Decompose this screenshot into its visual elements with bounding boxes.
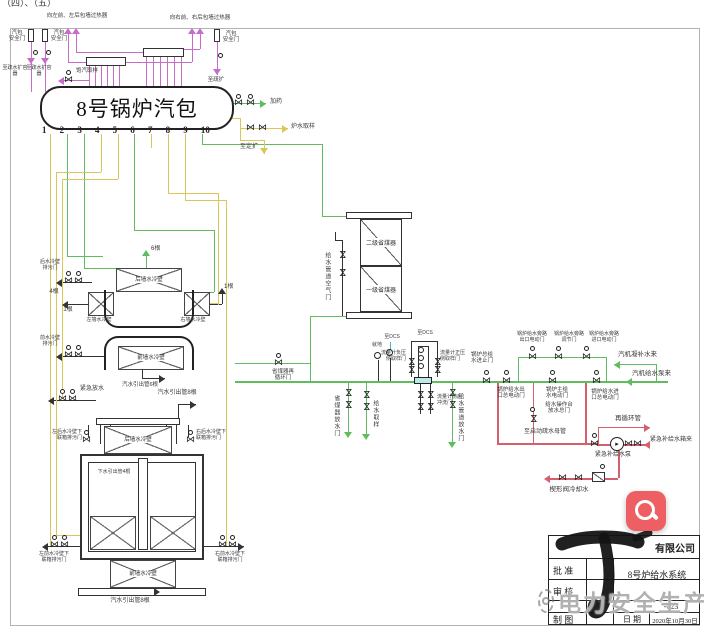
upper-wall-left-label: 左墙水冷壁	[76, 318, 122, 324]
arrowhead	[56, 279, 62, 287]
lower-outlet-bottom-label: 汽水引出管8根	[94, 598, 166, 605]
nozzle-4: 4	[95, 125, 100, 135]
actuator-icon	[220, 535, 225, 540]
valve-icon: ⋈	[337, 268, 346, 277]
valve-icon: ⋈	[406, 365, 415, 374]
search-icon-handle	[650, 511, 659, 520]
valve-icon: ⋈	[74, 351, 83, 360]
actuator-icon	[550, 370, 555, 375]
lower-front-label: 前墙水冷壁	[128, 571, 158, 577]
actuator-icon	[276, 353, 281, 358]
steam-drum: 8号锅炉汽包	[40, 86, 234, 130]
pipe-segment	[310, 316, 311, 381]
pipe-segment	[56, 172, 101, 173]
pipe-segment	[101, 148, 102, 172]
emerg-tank-label: 紧急补给水箱来	[650, 437, 702, 444]
dosing-label: 加药	[270, 99, 290, 106]
arrowhead	[213, 69, 221, 75]
pipe-segment	[84, 148, 85, 268]
local-gauge-label: 就地	[369, 343, 385, 349]
company-name: 有限公司	[549, 540, 695, 555]
valve-icon: ⋈	[502, 377, 511, 386]
emerg-recirc-label: 再循环管	[608, 415, 648, 422]
actuator-icon	[76, 345, 81, 350]
economizer-bottom-header	[346, 312, 412, 319]
arrowhead	[41, 58, 49, 64]
pipe-segment	[202, 134, 203, 144]
pipe-segment	[101, 134, 102, 148]
date-label: 日 期	[615, 614, 649, 625]
pipe-segment	[100, 425, 101, 444]
pipe-segment	[118, 148, 119, 179]
air-valve-label: 给水管道空气门	[323, 238, 330, 314]
cooling-water-label: 楔形阀冷却水	[544, 486, 594, 493]
arrowhead	[42, 543, 48, 551]
actuator-icon	[84, 430, 89, 435]
pipe-segment	[210, 292, 214, 293]
steam-header-left	[86, 57, 126, 66]
actuator-icon	[484, 370, 489, 375]
valve-icon: ⋈	[82, 436, 91, 445]
valve-icon: ⋈	[432, 365, 441, 374]
steam-sample-label: 饱汽取样	[70, 68, 104, 74]
arrowhead	[344, 432, 352, 438]
to-blowdown-label: 至定扩	[236, 144, 262, 151]
actuator-icon	[76, 271, 81, 276]
arrowhead	[27, 58, 35, 64]
steam-drum-label: 8号锅炉汽包	[76, 93, 198, 123]
lower-outlet-top-label: 汽水引出管8根	[144, 390, 210, 397]
economizer-top-header	[346, 212, 412, 219]
pipe-segment	[56, 535, 80, 536]
pipe-segment	[67, 134, 68, 148]
arrowhead	[154, 588, 160, 596]
pipe-segment	[335, 240, 342, 241]
upper-wall-top-header: 后墙水冷壁	[116, 268, 182, 292]
pipe-drain-label: 给水管道放水门	[456, 386, 463, 448]
pipe-segment	[226, 200, 227, 546]
valve-icon: ⋈	[258, 124, 267, 133]
valve-icon: ⋈	[574, 474, 583, 483]
steam-header-right	[143, 48, 184, 57]
pipe-segment	[322, 216, 346, 217]
search-button[interactable]	[626, 491, 666, 531]
search-icon	[635, 500, 655, 520]
pipe-segment	[67, 256, 103, 257]
valve-icon: ⋈	[58, 395, 67, 404]
pipe-segment	[497, 443, 598, 445]
valve-icon: ⋈	[415, 390, 424, 399]
pipe-segment	[235, 363, 310, 364]
pipe-segment	[310, 316, 346, 317]
valve-icon: ⋈	[64, 277, 73, 286]
flow-orifice	[414, 377, 432, 384]
actuator-icon	[66, 271, 71, 276]
nozzle-9: 9	[183, 125, 188, 135]
actuator-icon	[188, 430, 193, 435]
gauge-icon	[418, 355, 424, 361]
pipe-segment	[126, 62, 192, 63]
to-right-wall-label: 向右前、右后包墙过热器	[158, 15, 242, 21]
economizer-stage1-label: 一级省煤器	[365, 285, 397, 294]
drain-label-1: 至疏水扩容器	[2, 66, 28, 78]
actuator-icon	[592, 433, 597, 438]
valve-icon: ⋈	[590, 440, 599, 449]
upper-wall-top-label: 后墙水冷壁	[134, 277, 164, 283]
pipe-segment	[378, 360, 379, 381]
valve-icon: ⋈	[528, 414, 537, 423]
pipe-segment	[240, 128, 241, 140]
nozzle-2: 2	[60, 125, 65, 135]
arrowhead	[190, 401, 196, 409]
pipe-segment	[107, 66, 108, 86]
pipe-segment	[335, 232, 336, 240]
upper-wall-right-label: 右墙水冷壁	[170, 318, 216, 324]
pipe-segment	[67, 148, 68, 256]
valve-icon: ⋈	[425, 390, 434, 399]
valve-icon: ⋈	[246, 99, 255, 108]
valve-icon: ⋈	[274, 359, 283, 368]
valve-icon: ⋈	[528, 353, 537, 362]
valve-icon: ⋈	[633, 440, 642, 449]
valve-icon: ⋈	[68, 395, 77, 404]
outlet-mov-label: 锅炉给水出 口总电动门	[490, 387, 532, 400]
pipe-segment	[185, 134, 186, 148]
front-right-blowdown-label: 右前水冷壁下 联箱排污门	[202, 552, 258, 564]
pipe-segment	[62, 179, 63, 398]
arrowhead	[260, 100, 266, 108]
downcomer-label: 下水引出管4根	[92, 470, 136, 476]
actuator-icon	[600, 464, 605, 469]
valve-icon: ⋈	[50, 541, 59, 550]
fw-sample-label: 给水取样	[371, 392, 378, 436]
drain-label-3: 至疏扩	[204, 77, 228, 83]
upper-wall-bottom-label: 前墙水冷壁	[136, 355, 166, 361]
valve-icon: ⋈	[482, 377, 491, 386]
valve-icon: ⋈	[343, 400, 352, 409]
valve-icon: ⋈	[548, 377, 557, 386]
main-stop-label: 锅炉总给 水进止门	[460, 352, 504, 365]
system-title: 8号炉给水系统	[615, 568, 699, 581]
economizer-stage2-label: 二级省煤器	[365, 238, 397, 247]
nozzle-1: 1	[42, 125, 47, 135]
date-value: 2020年10月30日	[650, 615, 700, 625]
actuator-icon	[236, 94, 241, 99]
pipe-segment	[322, 144, 323, 216]
arrowhead	[56, 353, 62, 361]
bypass-out-label: 锅炉给水旁路 出口电动门	[510, 332, 554, 344]
pipe-segment	[185, 200, 226, 201]
nozzle-5: 5	[113, 125, 118, 135]
pipe-segment	[200, 32, 201, 49]
economizer-stage1: 一级省煤器	[360, 266, 402, 312]
actuator-icon	[530, 346, 535, 351]
safety-valve-symbol-3	[214, 29, 220, 42]
valve-icon: ⋈	[64, 76, 73, 85]
review-label: 审 核	[553, 585, 585, 598]
actuator-icon	[594, 370, 599, 375]
pipe-segment	[168, 148, 169, 193]
to-startup-label: 至启动疏水母管	[508, 429, 582, 436]
actuator-icon	[248, 94, 253, 99]
pipe-segment	[118, 134, 119, 148]
to-dcs-label-2: 至DCS	[413, 331, 437, 337]
valve-icon: ⋈	[234, 99, 243, 108]
valve-icon: ⋈	[337, 250, 346, 259]
safety-valve-label-1: 汽包 安全门	[8, 30, 26, 43]
arrowhead	[188, 28, 196, 34]
valve-icon: ⋈	[582, 353, 591, 362]
pipe-segment	[176, 425, 177, 444]
actuator-icon	[230, 535, 235, 540]
upper-outlet-label: 汽水引出管6根	[106, 382, 174, 388]
pipe-segment	[210, 303, 218, 304]
pipe-segment	[68, 62, 86, 63]
drum-nozzle-numbers: 12345678910	[42, 125, 210, 135]
arrowhead	[72, 28, 80, 34]
econ-drain-label: 省煤器放水门	[332, 388, 339, 444]
pipe-segment	[62, 179, 118, 180]
title-block: 有限公司 批 准 审 核 制 图 8号炉给水系统 -023 日 期 2020年1…	[548, 535, 700, 625]
actuator-icon	[60, 389, 65, 394]
water-sample-label: 炉水取样	[291, 124, 327, 131]
arrowhead	[142, 250, 150, 256]
pipe-segment	[84, 134, 85, 148]
pipe-segment	[84, 268, 116, 269]
pipe-segment	[134, 134, 135, 148]
arrowhead	[48, 397, 54, 405]
from-pump-label: 汽机给水泵来	[632, 370, 686, 377]
arrowhead	[644, 424, 650, 432]
drawing-number: -023	[647, 602, 695, 611]
draft-label: 制 图	[553, 613, 585, 626]
valve-icon: ⋈	[592, 377, 601, 386]
actuator-icon	[52, 535, 57, 540]
pipe-segment	[134, 230, 214, 231]
front-left-blowdown-label: 左前水冷壁下 联箱排污门	[26, 552, 82, 564]
pipe-segment	[614, 364, 656, 365]
lower-header-label: 后墙水冷壁	[123, 437, 153, 443]
valve-icon: ⋈	[64, 351, 73, 360]
valve-icon: ⋈	[624, 440, 633, 449]
pipe-segment	[76, 52, 143, 53]
safety-valve-label-2: 汽包 安全门	[50, 30, 68, 43]
valve-icon: ⋈	[74, 277, 83, 286]
inlet-mov-label: 锅炉给水进 口总电动门	[584, 389, 626, 402]
arrowhead	[362, 434, 370, 440]
pipe-segment	[113, 66, 114, 86]
emerg-drain-label: 紧急放水	[72, 386, 112, 393]
pipe-segment	[76, 32, 77, 52]
lower-hdr-left-label: 左后水冷壁下 联箱排污门	[36, 430, 82, 442]
safety-valve-symbol-2	[42, 29, 48, 42]
pipe-segment	[50, 134, 51, 148]
arrowhead	[614, 361, 620, 369]
diagram-page: （四）、（五） 8号锅炉汽包 12345678910 向左前、左后包墙过热器 向…	[0, 0, 704, 628]
valve-icon: ⋈	[425, 402, 434, 411]
main-mov-label: 锅炉主给 水电动门	[538, 387, 576, 400]
valve-icon: ⋈	[218, 541, 227, 550]
actuator-icon	[504, 370, 509, 375]
lower-top-header-bar	[96, 418, 180, 425]
pipe-segment	[518, 357, 519, 381]
cond-makeup-label: 汽机凝补水来	[618, 351, 670, 358]
pipe-segment	[134, 148, 135, 230]
recirc-valve-label: 省煤器再 循环门	[266, 369, 300, 382]
nozzle-8: 8	[166, 125, 171, 135]
valve-icon: ⋈	[415, 402, 424, 411]
station-drain-label: 给水操作台 放水总门	[538, 402, 580, 415]
actuator-icon	[584, 346, 589, 351]
center-downcomer-pipe	[138, 458, 148, 550]
upper-wall-bottom-header: 前墙水冷壁	[118, 346, 184, 370]
valve-icon: ⋈	[361, 402, 370, 411]
arrowhead	[196, 28, 204, 34]
rear-blowdown-label: 后水冷壁 排污门	[32, 260, 68, 272]
nozzle-6: 6	[130, 125, 135, 135]
valve-icon: ⋈	[343, 388, 352, 397]
arrowhead	[238, 543, 244, 551]
gauge-icon	[418, 363, 424, 369]
to-dcs-label-1: 至DCS	[381, 335, 403, 341]
nozzle-7: 7	[148, 125, 153, 135]
front-blowdown-label: 前水冷壁 排污门	[32, 336, 68, 348]
safety-valve-symbol-1	[28, 29, 34, 42]
valve-icon: ⋈	[186, 436, 195, 445]
valve-icon: ⋈	[228, 541, 237, 550]
actuator-icon	[530, 407, 535, 412]
pipe-segment	[151, 134, 152, 148]
pipe-segment	[192, 32, 193, 62]
pipe-segment	[68, 32, 69, 62]
pipe-segment	[411, 341, 437, 342]
lower-base-bar	[78, 588, 206, 596]
pipe-segment	[142, 370, 143, 378]
actuator-icon	[46, 50, 51, 55]
lower-hdr-right-label: 右后水冷壁下 联箱排污门	[196, 430, 242, 442]
valve-icon: ⋈	[246, 124, 255, 133]
pipe-segment	[240, 140, 264, 141]
pipe-segment	[168, 134, 169, 148]
gauge-icon	[418, 347, 424, 353]
arrowhead	[544, 475, 550, 483]
emergency-pump-symbol: ▸	[610, 437, 624, 451]
flowmeter-flush-label: 流量计前后 冲洗门	[437, 395, 473, 407]
flowmeter-neg-label: 流量计负压 侧取样门	[374, 351, 406, 363]
lower-bottom-trapezoid: 前墙水冷壁	[110, 560, 176, 588]
to-left-wall-label: 向左前、左后包墙过热器	[36, 13, 118, 19]
corner-text-fragment: （四）、（五）	[2, 0, 122, 8]
actuator-icon	[62, 535, 67, 540]
nozzle-10: 10	[201, 125, 210, 135]
pipe-segment	[598, 427, 650, 428]
pipe-segment	[240, 118, 241, 128]
pipe-segment	[119, 66, 120, 86]
actuator-icon	[218, 53, 223, 58]
arrowhead	[448, 442, 456, 448]
actuator-icon	[556, 346, 561, 351]
valve-icon: ⋈	[361, 390, 370, 399]
pipes-1b-label: 1根	[224, 284, 240, 291]
approve-label: 批 准	[553, 564, 585, 577]
pipes-1a-label: 1根	[60, 307, 76, 314]
valve-icon: ⋈	[554, 353, 563, 362]
pipe-segment	[178, 404, 179, 418]
valve-icon: ⋈	[60, 541, 69, 550]
pipe-segment	[428, 346, 429, 377]
economizer-stage2: 二级省煤器	[360, 219, 402, 266]
emerg-pump-label: 紧急补给水泵	[588, 452, 638, 459]
valve-icon: ⋈	[558, 474, 567, 483]
pipe-segment	[214, 230, 215, 292]
pipes-4-label: 4根	[46, 289, 62, 296]
drain-label-2: 至疏水扩容器	[26, 66, 52, 78]
pipe-segment	[168, 193, 218, 194]
arrowhead	[282, 125, 288, 133]
pipe-segment	[202, 144, 322, 145]
actuator-icon	[33, 50, 38, 55]
safety-valve-label-3: 汽包 安全门	[222, 31, 240, 44]
pipe-segment	[606, 357, 607, 381]
lower-top-trapezoid: 后墙水冷壁	[104, 426, 172, 454]
bypass-in-label: 锅炉给水旁路 进口电动门	[582, 332, 626, 344]
control-valve-symbol	[592, 472, 605, 482]
arrowhead	[626, 378, 632, 386]
pipes-6-label: 6根	[151, 246, 167, 253]
furnace-x-right	[150, 516, 196, 550]
furnace-x-left	[90, 516, 136, 550]
nozzle-3: 3	[77, 125, 82, 135]
